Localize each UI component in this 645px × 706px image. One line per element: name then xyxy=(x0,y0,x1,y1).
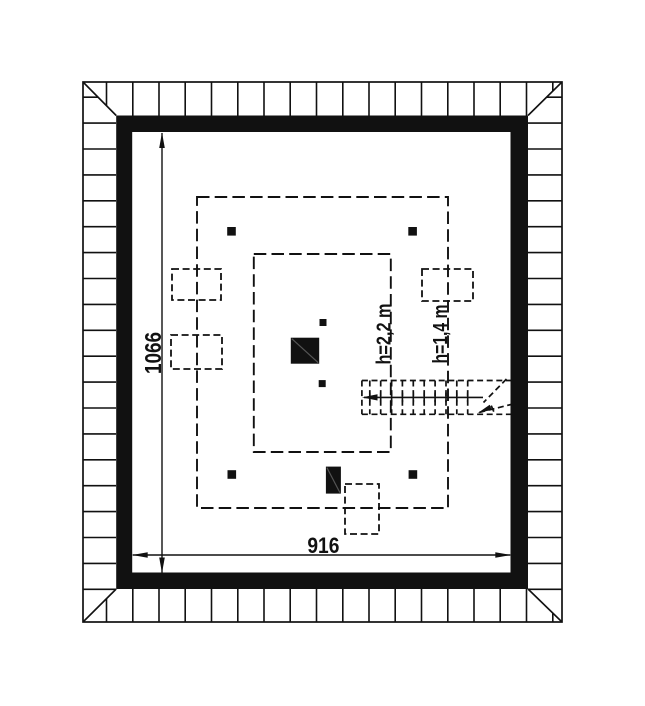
svg-text:h=1,4 m: h=1,4 m xyxy=(430,305,452,364)
svg-text:h=2,2 m: h=2,2 m xyxy=(373,304,395,365)
svg-text:916: 916 xyxy=(307,533,339,558)
svg-text:1066: 1066 xyxy=(140,332,166,374)
